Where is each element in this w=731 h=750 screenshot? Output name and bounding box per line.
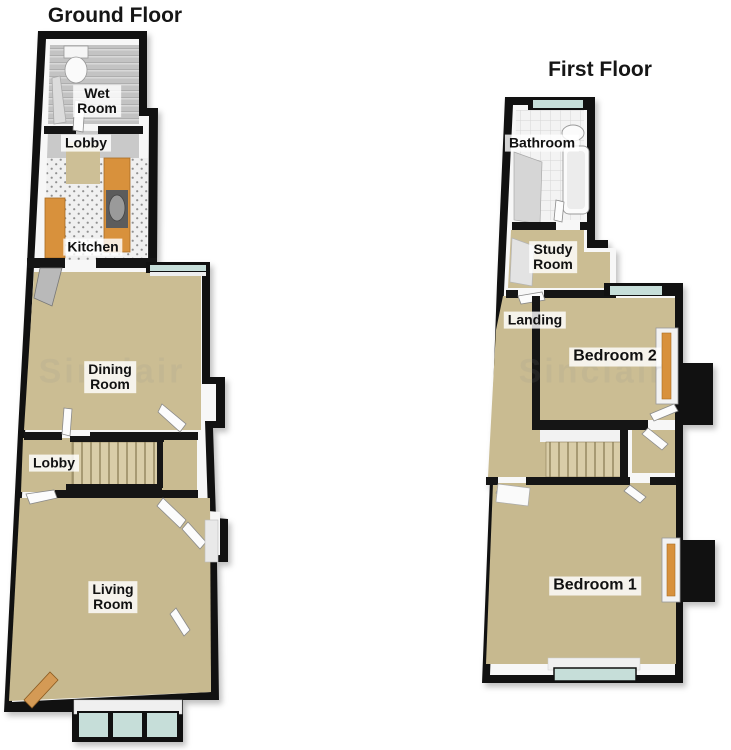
bathroom-door [554, 200, 564, 222]
wall-bathroom-study-left [512, 222, 556, 230]
wall-wetroom-lobby-left [44, 126, 76, 134]
stairs-right-wall [620, 430, 628, 477]
kitchen-sink-basin [109, 195, 125, 221]
wall-bathroom-study-right [580, 222, 590, 230]
stairs-far-wall-face [540, 430, 628, 442]
bay-window-glass [78, 712, 178, 738]
wall-wetroom-lobby-right [98, 126, 143, 134]
bedroom-2-window-glass [610, 286, 662, 295]
first-floor-title: First Floor [548, 58, 652, 82]
wall-study-landing-left [506, 290, 518, 298]
room-label-bedroom-2: Bedroom 2 [569, 348, 661, 367]
wall-lobby-living [55, 490, 198, 498]
wall-dining-lobby-left [24, 432, 62, 440]
bedroom-1-furniture [496, 484, 530, 506]
wall-bedroom1-top-c [650, 477, 676, 485]
dining-door [62, 408, 72, 436]
room-label-bathroom: Bathroom [505, 135, 579, 152]
room-label-bedroom-1: Bedroom 1 [549, 577, 641, 596]
bedroom-1-floor [486, 483, 676, 664]
stairs-ground [72, 442, 162, 486]
bedroom-2-wardrobe-door [662, 333, 671, 399]
room-label-dining-room: Dining Room [84, 361, 136, 393]
wall-bedroom2-bottom [532, 420, 632, 430]
room-label-wet-room: Wet Room [73, 85, 121, 117]
stairs-side-wall [157, 442, 163, 488]
room-label-landing: Landing [504, 312, 566, 329]
bedroom-1-window-glass [554, 668, 636, 681]
bathroom-window-glass [533, 100, 583, 108]
room-label-lobby: Lobby [61, 135, 111, 152]
room-label-living-room: Living Room [88, 581, 137, 613]
living-side-window [205, 520, 218, 562]
bay-window-mullion-2 [142, 712, 147, 738]
kitchen-counter-left [45, 198, 65, 258]
floorplan-image: Sinclair Sinclair Ground Floor First Flo… [0, 0, 731, 750]
stairs-balustrade [66, 484, 162, 491]
toilet-cistern [64, 46, 88, 58]
bathtub-inner [567, 151, 585, 209]
toilet-bowl [65, 57, 87, 83]
dining-window-sill [150, 272, 206, 276]
wall-kitchen-dining-left [27, 258, 65, 268]
wall-bedroom1-top-b [526, 477, 630, 485]
room-label-kitchen: Kitchen [63, 239, 122, 256]
bay-window-mullion-1 [108, 712, 113, 738]
airing-cupboard [514, 152, 542, 224]
wall-bedroom2-bottom-right [632, 420, 648, 430]
wall-bedroom1-top-a [486, 477, 498, 485]
stairs-first [546, 442, 622, 477]
room-label-study-room: Study Room [529, 241, 577, 273]
stairs-top-wall [70, 436, 164, 442]
ground-floor-title: Ground Floor [48, 4, 182, 28]
bedroom-1-chimney-wood [667, 544, 675, 596]
room-label-lobby-2: Lobby [29, 455, 79, 472]
dining-window-glass [150, 265, 206, 271]
